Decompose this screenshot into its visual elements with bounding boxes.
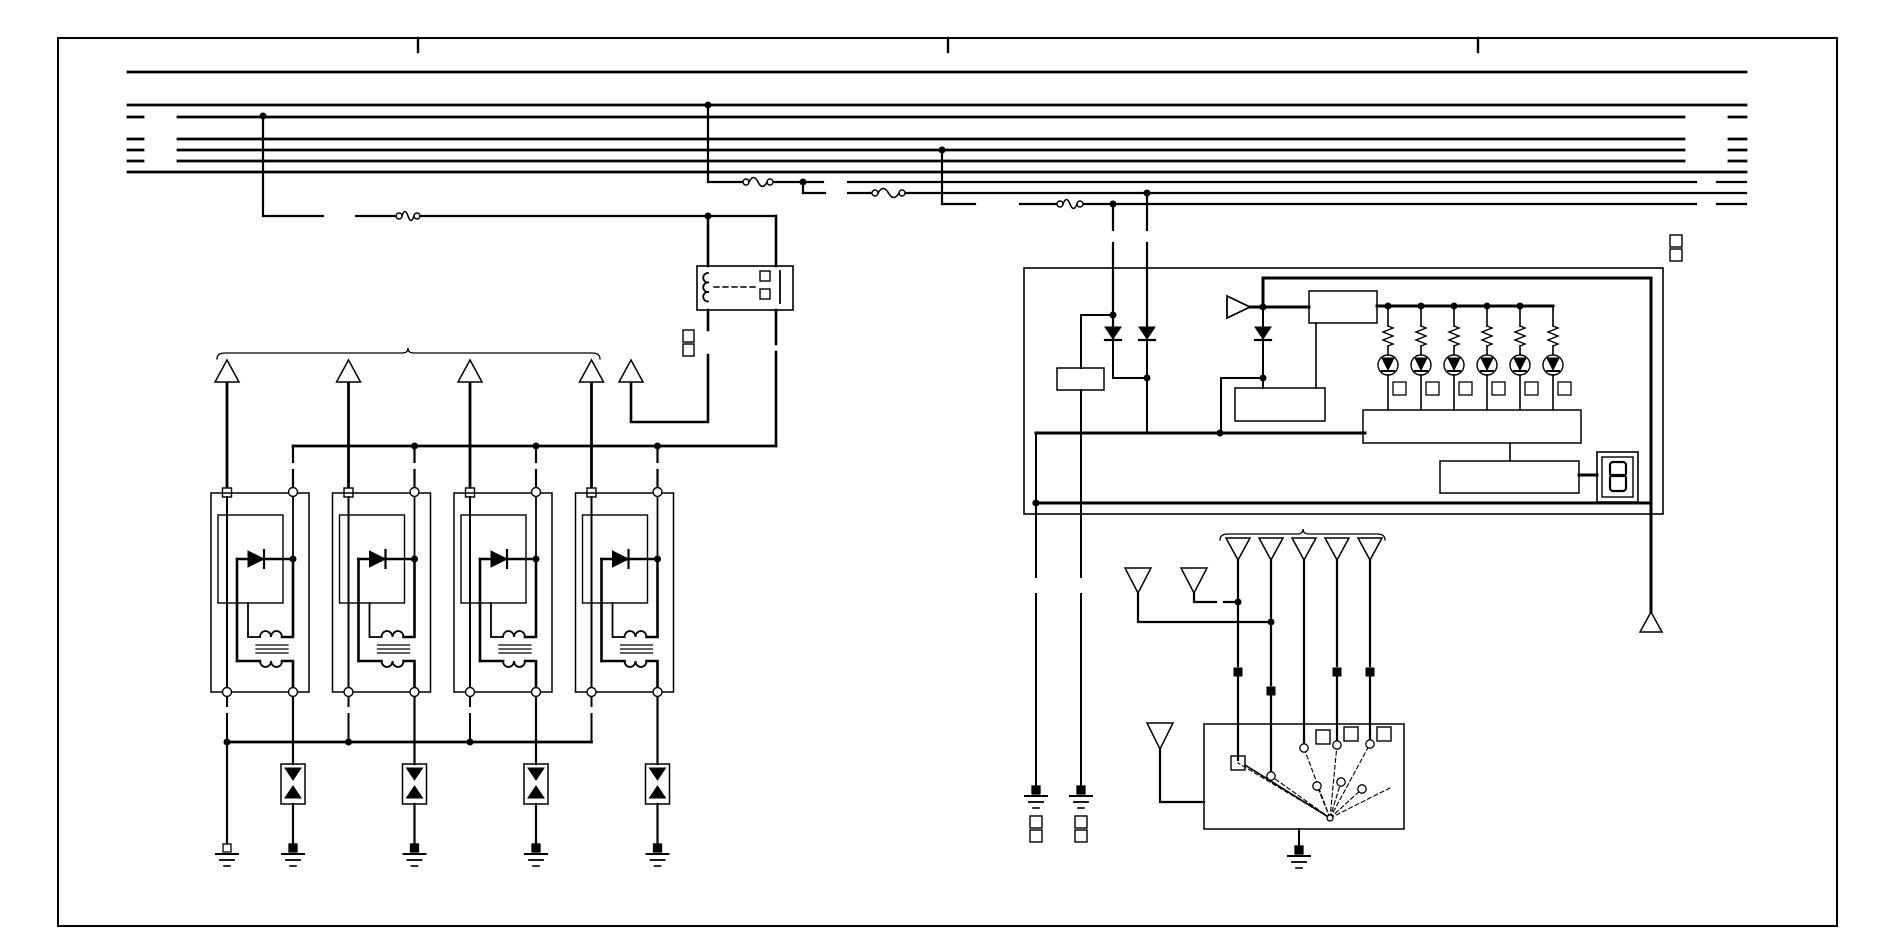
connector-triangle-down — [1325, 538, 1349, 560]
connector-triangle-down — [1259, 538, 1283, 560]
connector-triangle-down — [1358, 538, 1382, 560]
coil-block-4 — [576, 382, 674, 844]
connector-triangle-up — [1640, 612, 1662, 632]
ground-symbols — [216, 786, 1310, 868]
connector-triangle-down — [1147, 723, 1173, 749]
connector-triangle-down — [1125, 568, 1151, 593]
ground-symbol — [404, 844, 426, 866]
connector-triangle-up — [215, 360, 239, 382]
ground-symbol — [282, 844, 304, 866]
connector-label-squares — [683, 235, 1682, 842]
led-branch-6 — [1543, 306, 1571, 410]
group-braces — [217, 348, 1385, 540]
coil-block-1 — [211, 382, 309, 844]
coil-block-2 — [333, 382, 431, 844]
relay — [697, 266, 793, 310]
ground-symbol — [525, 844, 547, 866]
wiring-diagram — [0, 0, 1900, 950]
connector-triangle-up — [337, 360, 361, 382]
connector-triangle-up — [458, 360, 482, 382]
wiring-diagram-page — [0, 0, 1900, 950]
connector-triangle-up — [619, 360, 643, 382]
led-branch-5 — [1510, 306, 1538, 410]
wires — [227, 105, 1651, 846]
ground-symbol — [1025, 786, 1047, 808]
ground-symbol — [216, 844, 238, 866]
connector-triangle-up — [580, 360, 604, 382]
ground-symbol — [647, 844, 669, 866]
fuse-symbols — [396, 178, 1083, 221]
led-branch-1 — [1378, 306, 1406, 410]
junction-dots — [224, 102, 1524, 746]
led-indicator-branches — [1378, 306, 1571, 410]
coil-block-3 — [454, 382, 552, 844]
connector-triangle-down — [1226, 538, 1250, 560]
connector-triangle-down — [1292, 538, 1316, 560]
led-branch-3 — [1444, 306, 1472, 410]
connector-triangles — [215, 360, 1662, 749]
ground-symbol — [1288, 846, 1310, 868]
led-branch-2 — [1411, 306, 1439, 410]
led-branch-4 — [1477, 306, 1505, 410]
power-bus-lines — [128, 72, 1746, 204]
coil-blocks — [211, 382, 674, 844]
connector-triangle-down — [1181, 568, 1207, 593]
instrument-cluster — [1024, 268, 1663, 514]
seven-segment-display — [1597, 452, 1638, 502]
ground-symbol — [1070, 786, 1092, 808]
